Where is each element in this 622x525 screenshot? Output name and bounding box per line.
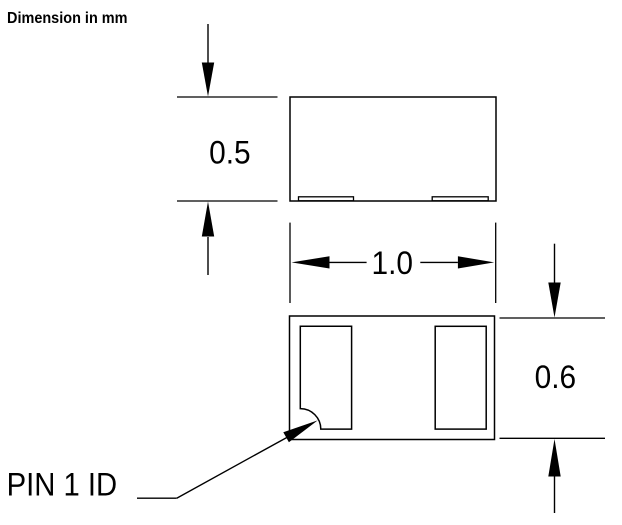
svg-text:PIN 1 ID: PIN 1 ID <box>7 466 118 502</box>
svg-text:0.5: 0.5 <box>209 134 251 170</box>
svg-text:Dimension in mm: Dimension in mm <box>7 10 128 27</box>
svg-text:1.0: 1.0 <box>372 245 414 281</box>
svg-text:0.6: 0.6 <box>535 359 577 395</box>
